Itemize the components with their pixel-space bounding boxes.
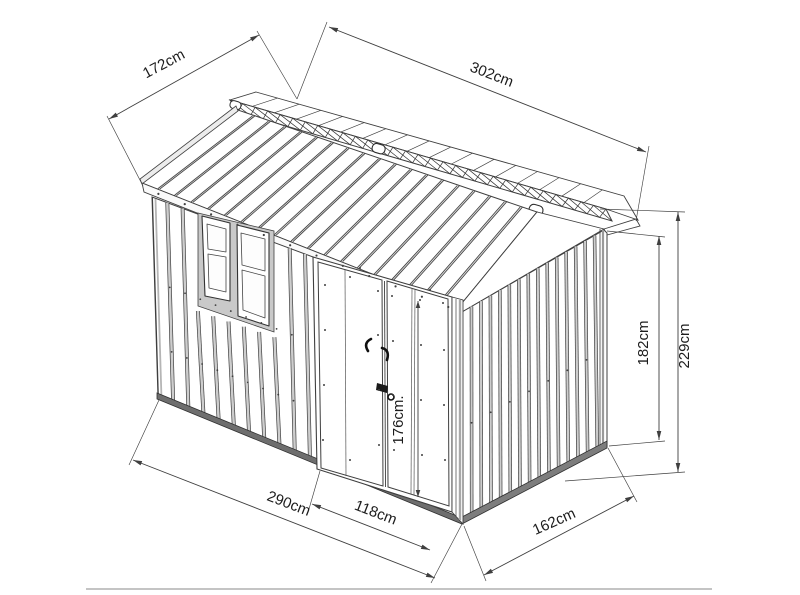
double-door: [313, 257, 463, 524]
window-left-sash: [202, 216, 230, 301]
door-left-leaf: [318, 262, 383, 486]
dim-label-roof-slope-width: 172cm: [140, 46, 188, 82]
dim-label-side-depth: 162cm: [530, 505, 578, 539]
shed-dimension-diagram: 172cm 302cm 290cm 118cm 162cm 182cm 229c…: [0, 0, 800, 595]
dim-label-wall-height: 182cm: [635, 320, 652, 365]
shed-technical-drawing: 172cm 302cm 290cm 118cm 162cm 182cm 229c…: [0, 0, 800, 595]
window-right-sash: [237, 225, 269, 326]
dim-label-front-width: 290cm: [265, 488, 313, 520]
dim-label-roof-length: 302cm: [468, 59, 516, 91]
dim-label-door-width: 118cm: [352, 497, 399, 529]
dim-label-overall-height: 229cm: [676, 323, 693, 368]
dim-label-door-height: 176cm.: [390, 395, 407, 444]
corner-post: [452, 297, 463, 524]
